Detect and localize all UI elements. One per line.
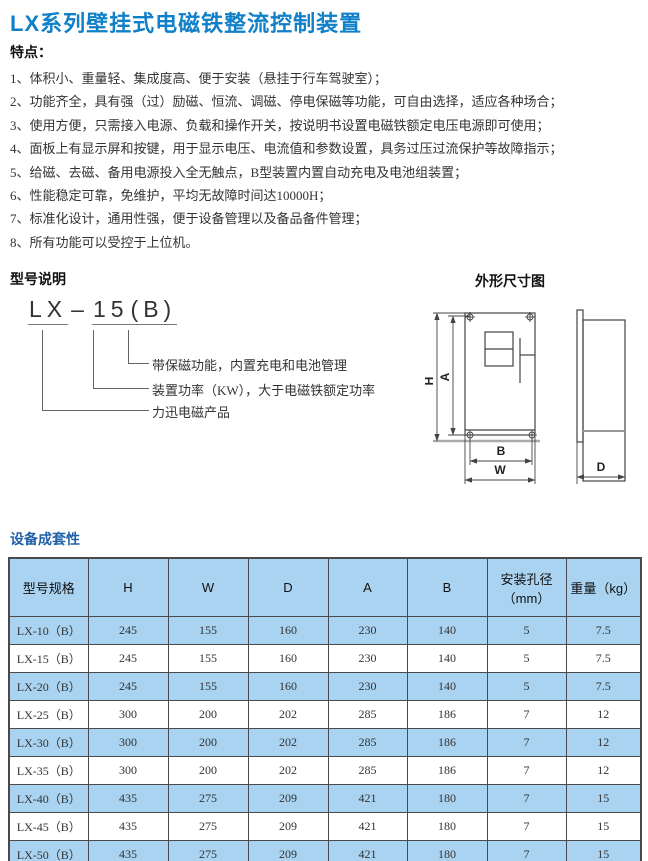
cell-w: 155 [168,673,248,701]
dim-label-w: W [494,463,506,477]
table-row: LX-40（B） 435 275 209 421 180 7 15 [9,785,641,813]
table-row: LX-15（B） 245 155 160 230 140 5 7.5 [9,645,641,673]
features-section: 特点： 1、体积小、重量轻、集成度高、便于安装（悬挂于行车驾驶室）； 2、功能齐… [10,42,642,254]
table-row: LX-30（B） 300 200 202 285 186 7 12 [9,729,641,757]
features-heading: 特点： [10,42,642,62]
dim-label-h: H [425,377,436,386]
cell-a: 421 [328,785,407,813]
model-explanation-b: 带保磁功能，内置充电和电池管理 [152,355,347,374]
cell-w: 275 [168,785,248,813]
col-header-weight: 重量（kg） [566,558,641,617]
feature-item: 5、给磁、去磁、备用电源投入全无触点，B型装置内置自动充电及电池组装置； [10,161,642,184]
cell-h: 435 [88,813,168,841]
product-spec-page: LX系列壁挂式电磁铁整流控制装置 特点： 1、体积小、重量轻、集成度高、便于安装… [0,0,648,861]
cell-hole: 5 [487,617,566,645]
cell-hole: 7 [487,841,566,861]
table-row: LX-25（B） 300 200 202 285 186 7 12 [9,701,641,729]
cell-w: 200 [168,729,248,757]
col-header-b: B [407,558,487,617]
cell-d: 209 [248,785,328,813]
feature-item: 2、功能齐全，具有强（过）励磁、恒流、调磁、停电保磁等功能，可自由选择，适应各种… [10,90,642,113]
cell-a: 230 [328,673,407,701]
cell-model: LX-15（B） [9,645,88,673]
display-window [485,332,535,383]
cell-d: 209 [248,841,328,861]
cell-h: 245 [88,673,168,701]
col-header-a: A [328,558,407,617]
cell-d: 160 [248,645,328,673]
cell-hole: 7 [487,785,566,813]
dimension-drawing-heading: 外形尺寸图 [475,271,545,291]
cell-hole: 7 [487,813,566,841]
cell-b: 180 [407,785,487,813]
cell-w: 275 [168,841,248,861]
dimension-drawing: H A B W D [425,293,648,505]
cell-a: 230 [328,645,407,673]
cell-h: 300 [88,757,168,785]
feature-item: 4、面板上有显示屏和按键，用于显示电压、电流值和参数设置，具务过压过流保护等故障… [10,137,642,160]
cell-w: 155 [168,617,248,645]
table-section-heading: 设备成套性 [10,529,80,549]
cell-hole: 5 [487,645,566,673]
cell-a: 421 [328,813,407,841]
model-section-heading: 型号说明 [10,269,66,289]
model-code-power: 15 [92,296,130,325]
cell-h: 435 [88,841,168,861]
cell-a: 285 [328,729,407,757]
cell-h: 245 [88,645,168,673]
feature-item: 8、所有功能可以受控于上位机。 [10,231,642,254]
cell-w: 200 [168,701,248,729]
feature-item: 6、性能稳定可靠，免维护，平均无故障时间达10000H； [10,184,642,207]
cell-a: 285 [328,757,407,785]
cell-b: 186 [407,757,487,785]
cell-model: LX-35（B） [9,757,88,785]
cell-weight: 12 [566,729,641,757]
table-row: LX-45（B） 435 275 209 421 180 7 15 [9,813,641,841]
page-title: LX系列壁挂式电磁铁整流控制装置 [10,6,362,38]
cell-b: 140 [407,645,487,673]
model-explanation-power: 装置功率（KW），大于电磁铁额定功率 [152,380,375,399]
cell-d: 209 [248,813,328,841]
cell-d: 202 [248,729,328,757]
model-code-prefix: LX [28,296,68,325]
cell-w: 275 [168,813,248,841]
cell-a: 285 [328,701,407,729]
cell-a: 230 [328,617,407,645]
col-header-w: W [168,558,248,617]
cell-model: LX-50（B） [9,841,88,861]
col-header-d: D [248,558,328,617]
table-row: LX-10（B） 245 155 160 230 140 5 7.5 [9,617,641,645]
cell-h: 245 [88,617,168,645]
cell-b: 180 [407,841,487,861]
cell-h: 300 [88,701,168,729]
cell-h: 300 [88,729,168,757]
side-view-drawing [577,310,625,484]
cell-b: 140 [407,673,487,701]
cell-weight: 7.5 [566,673,641,701]
dim-label-d: D [597,460,606,474]
cell-model: LX-25（B） [9,701,88,729]
feature-item: 7、标准化设计，通用性强，便于设备管理以及备品备件管理； [10,207,642,230]
cell-weight: 7.5 [566,617,641,645]
features-list: 1、体积小、重量轻、集成度高、便于安装（悬挂于行车驾驶室）； 2、功能齐全，具有… [10,67,642,254]
cell-b: 186 [407,729,487,757]
cell-d: 202 [248,701,328,729]
model-code: LX–15(B) [28,296,177,323]
model-code-suffix: (B) [130,296,178,325]
cell-model: LX-45（B） [9,813,88,841]
cell-weight: 12 [566,757,641,785]
cell-hole: 5 [487,673,566,701]
col-header-model: 型号规格 [9,558,88,617]
table-row: LX-20（B） 245 155 160 230 140 5 7.5 [9,673,641,701]
spec-table: 型号规格 H W D A B 安装孔径 （mm） 重量（kg） LX-10（B）… [8,557,642,861]
cell-weight: 12 [566,701,641,729]
cell-weight: 15 [566,841,641,861]
table-row: LX-35（B） 300 200 202 285 186 7 12 [9,757,641,785]
cell-d: 202 [248,757,328,785]
cell-a: 421 [328,841,407,861]
cell-b: 140 [407,617,487,645]
cell-hole: 7 [487,729,566,757]
cell-weight: 15 [566,813,641,841]
cell-model: LX-40（B） [9,785,88,813]
col-header-h: H [88,558,168,617]
cell-d: 160 [248,673,328,701]
cell-w: 155 [168,645,248,673]
cell-model: LX-20（B） [9,673,88,701]
dim-label-b: B [497,444,506,458]
col-header-hole: 安装孔径 （mm） [487,558,566,617]
feature-item: 3、使用方便，只需接入电源、负载和操作开关，按说明书设置电磁铁额定电压电源即可使… [10,114,642,137]
feature-item: 1、体积小、重量轻、集成度高、便于安装（悬挂于行车驾驶室）； [10,67,642,90]
cell-d: 160 [248,617,328,645]
front-view-drawing [433,312,540,484]
spec-table-header-row: 型号规格 H W D A B 安装孔径 （mm） 重量（kg） [9,558,641,617]
cell-model: LX-30（B） [9,729,88,757]
dim-label-a: A [438,372,452,381]
table-row: LX-50（B） 435 275 209 421 180 7 15 [9,841,641,861]
cell-b: 180 [407,813,487,841]
cell-hole: 7 [487,701,566,729]
model-code-dash: – [71,296,89,322]
cell-model: LX-10（B） [9,617,88,645]
cell-weight: 15 [566,785,641,813]
cell-weight: 7.5 [566,645,641,673]
cell-h: 435 [88,785,168,813]
cell-hole: 7 [487,757,566,785]
cell-b: 186 [407,701,487,729]
model-explanation-brand: 力迅电磁产品 [152,402,230,421]
cell-w: 200 [168,757,248,785]
model-connector-line-brand [42,330,149,411]
